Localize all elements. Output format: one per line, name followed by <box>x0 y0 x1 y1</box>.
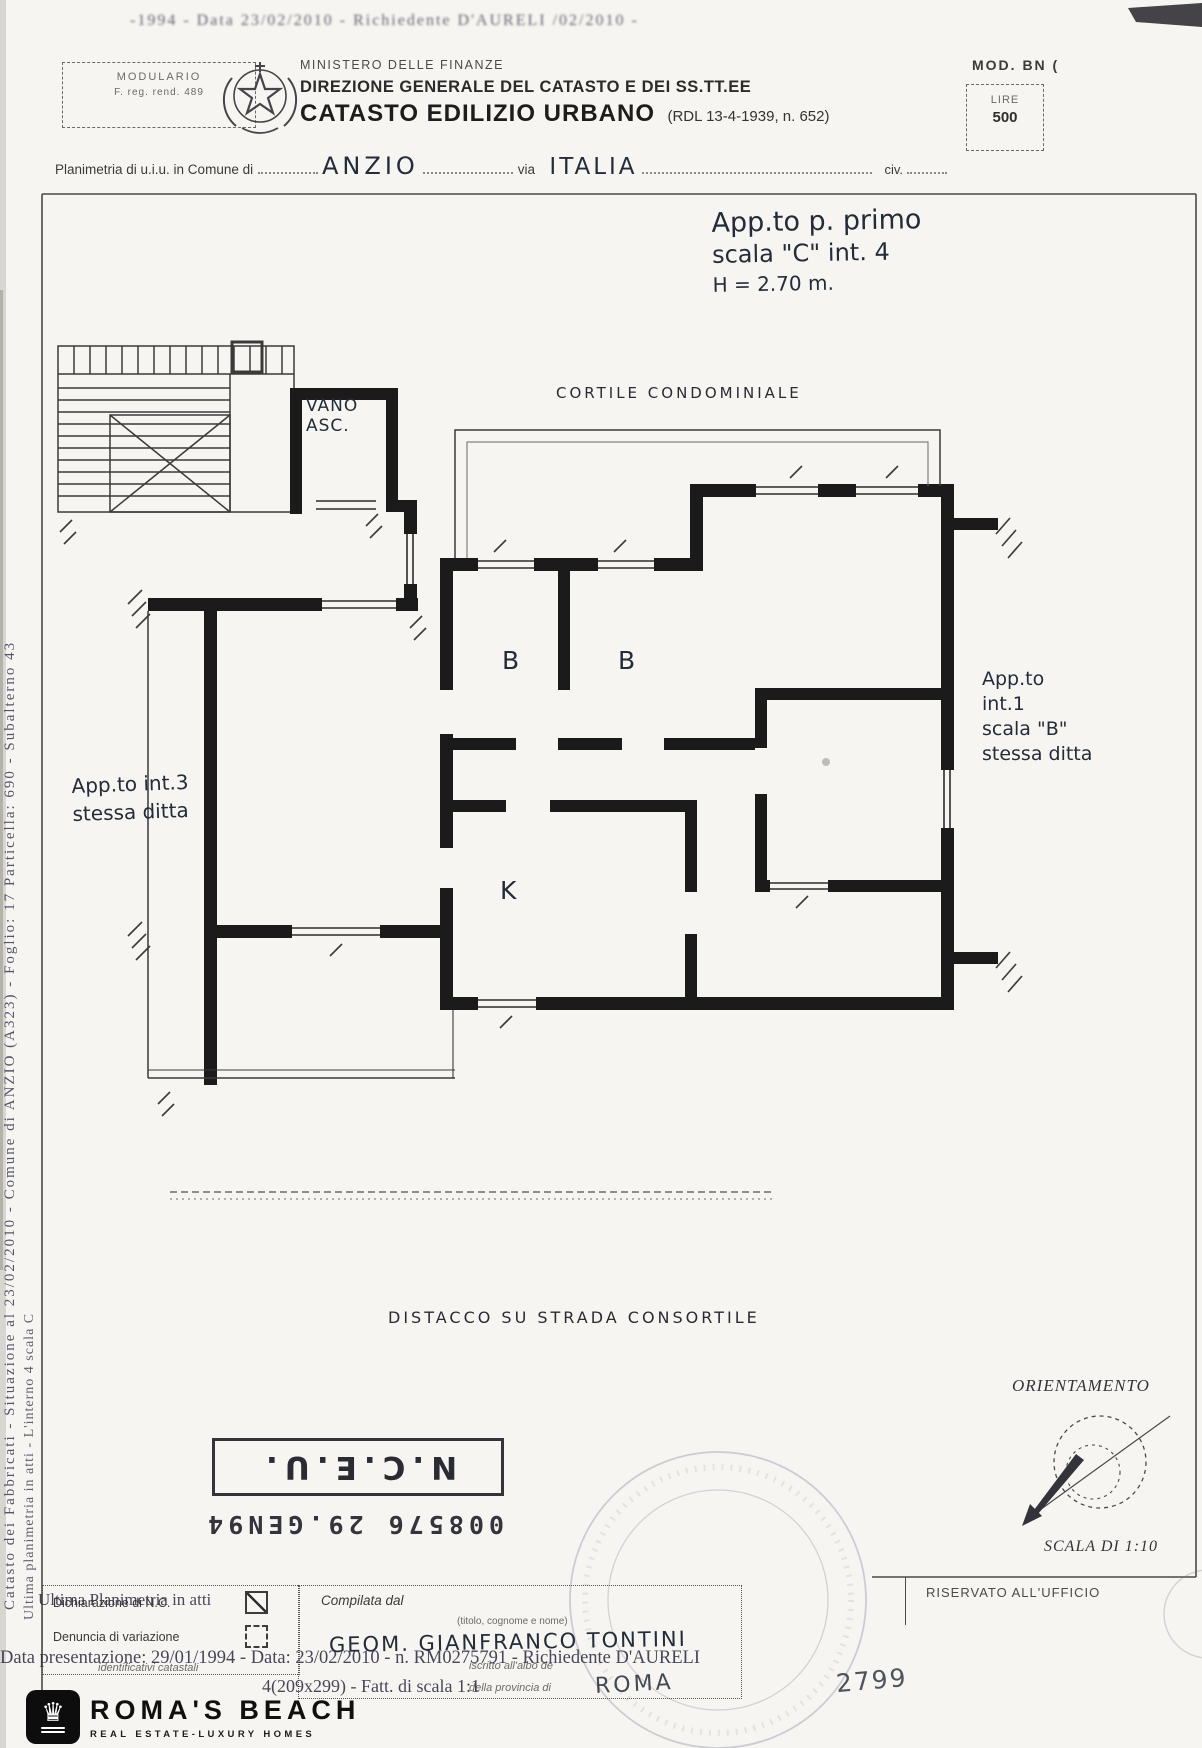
vano-line2: ASC. <box>306 416 358 436</box>
margin-text-inner: Ultima planimetria in atti - L'interno 4… <box>22 1140 38 1620</box>
left-apartment-label: App.to int.3 stessa ditta <box>71 770 190 826</box>
right-apt-line1: App.to <box>982 668 1202 690</box>
nceu-stamp-box: N.C.E.U. <box>212 1438 504 1496</box>
left-apt-line2: stessa ditta <box>72 798 190 826</box>
variation-label: Denuncia di variazione <box>53 1630 179 1644</box>
scale-label: SCALA DI 1:10 <box>1044 1538 1158 1556</box>
agency-logo-text: ROMA'S BEACH REAL ESTATE-LUXURY HOMES <box>90 1695 360 1740</box>
top-overprint-text: -1994 - Data 23/02/2010 - Richiedente D'… <box>130 12 1190 30</box>
agency-tagline: REAL ESTATE-LUXURY HOMES <box>90 1729 360 1740</box>
subject-line: Planimetria di u.i.u. in Comune di ANZIO… <box>55 152 1185 180</box>
right-apt-line4: stessa ditta <box>982 743 1202 765</box>
nceu-stamp: 008576 29.GEN94 N.C.E.U. <box>212 1438 504 1539</box>
office-reserved-box: RISERVATO ALL'UFFICIO <box>905 1577 1197 1625</box>
ministry-line: MINISTERO DELLE FINANZE <box>300 58 504 72</box>
cortile-label: CORTILE CONDOMINIALE <box>556 384 802 402</box>
lire-label: LIRE <box>967 94 1043 106</box>
via-label: via <box>518 162 535 177</box>
mod-label: MOD. BN ( <box>972 57 1059 73</box>
vano-line1: VANO <box>306 396 358 416</box>
compiler-label: Compilata dal <box>321 1593 404 1608</box>
via-value: ITALIA <box>549 154 637 180</box>
stairwell <box>58 342 294 512</box>
variation-row: Denuncia di variazione <box>53 1628 179 1646</box>
agency-name: ROMA'S BEACH <box>90 1695 360 1726</box>
orientamento-label: ORIENTAMENTO <box>1012 1376 1150 1396</box>
nceu-stamp-title: N.C.E.U. <box>259 1449 457 1485</box>
annotation-line3: H = 2.70 m. <box>712 269 922 297</box>
right-apt-line3: scala "B" <box>982 718 1202 740</box>
document-title: CATASTO EDILIZIO URBANO <box>300 100 655 127</box>
declaration-checkbox <box>245 1591 268 1614</box>
crown-icon: ♛ <box>26 1690 80 1744</box>
compiler-hint: (titolo, cognome e nome) <box>457 1616 568 1627</box>
annotation-line1: App.to p. primo <box>711 204 921 239</box>
room-label-b2: B <box>618 646 635 675</box>
data-line-overlay: Data presentazione: 29/01/1994 - Data: 2… <box>0 1648 770 1669</box>
ultima-overlay: Ultima Planimetria in atti <box>38 1590 211 1610</box>
office-reserved-label: RISERVATO ALL'UFFICIO <box>926 1585 1197 1600</box>
right-apt-line2: int.1 <box>982 693 1202 715</box>
comune-value: ANZIO <box>322 152 419 180</box>
distacco-label: DISTACCO SU STRADA CONSORTILE <box>388 1308 760 1327</box>
scanned-cadastral-document: -1994 - Data 23/02/2010 - Richiedente D'… <box>0 0 1202 1748</box>
direction-line: DIREZIONE GENERALE DEL CATASTO E DEI SS.… <box>300 78 751 97</box>
room-label-k: K <box>500 876 516 905</box>
state-emblem-icon <box>222 52 298 144</box>
nceu-stamp-number: 008576 29.GEN94 <box>212 1510 504 1539</box>
agency-logo: ♛ ROMA'S BEACH REAL ESTATE-LUXURY HOMES <box>26 1690 360 1744</box>
province-label: della provincia di <box>469 1682 551 1694</box>
distacco-boundary <box>170 1192 775 1199</box>
compass-icon <box>1022 1416 1170 1526</box>
document-title-ref: (RDL 13-4-1939, n. 652) <box>667 108 829 125</box>
variation-checkbox <box>245 1625 268 1648</box>
lire-box: LIRE 500 <box>966 84 1044 151</box>
subject-prefix: Planimetria di u.i.u. in Comune di <box>55 162 253 177</box>
lire-value: 500 <box>967 109 1043 126</box>
document-title-row: CATASTO EDILIZIO URBANO (RDL 13-4-1939, … <box>300 100 830 128</box>
left-apt-line1: App.to int.3 <box>71 770 189 798</box>
civ-label: civ. <box>884 162 903 177</box>
annotation-line2: scala "C" int. 4 <box>712 237 922 269</box>
room-label-b1: B <box>502 646 519 675</box>
register-number: 2799 <box>835 1663 909 1698</box>
right-apartment-label: App.to int.1 scala "B" stessa ditta <box>982 668 1202 765</box>
vano-asc-label: VANO ASC. <box>306 396 358 436</box>
margin-text-outer: Catasto dei Fabbricati - Situazione al 2… <box>2 310 19 1610</box>
apartment-annotation: App.to p. primo scala "C" int. 4 H = 2.7… <box>711 204 922 297</box>
province-value: ROMA <box>594 1670 674 1699</box>
floor-plan-drawing <box>0 0 1202 1748</box>
